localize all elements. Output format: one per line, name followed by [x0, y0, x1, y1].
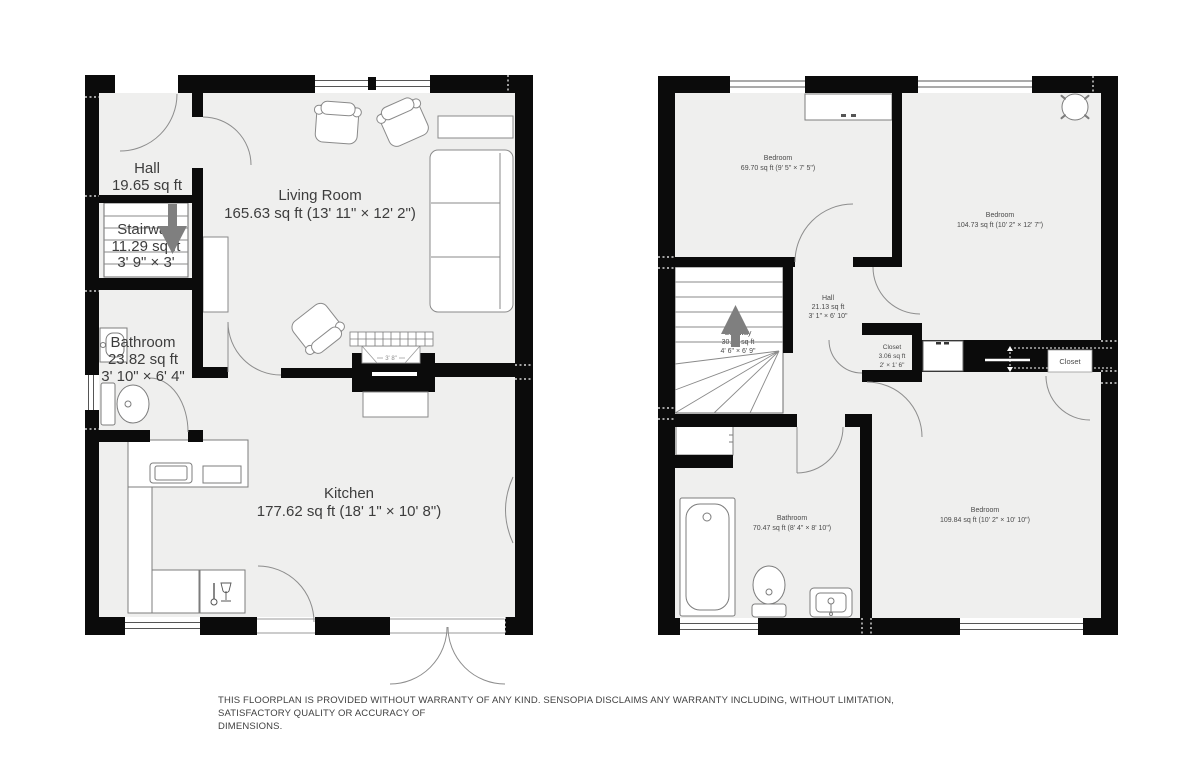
bedroom3-area: 109.84 sq ft (10' 2" × 10' 10")	[940, 517, 1030, 524]
bathroom-label: Bathroom	[110, 334, 175, 351]
hall-area: 19.65 sq ft	[112, 177, 183, 194]
window	[315, 75, 430, 93]
fireplace-width-label: 3' 8"	[385, 356, 397, 362]
window	[125, 617, 200, 635]
counter	[128, 487, 152, 613]
hall-area: 21.13 sq ft	[812, 304, 845, 311]
stairway-dims: 4' 6" × 6' 9"	[720, 348, 756, 355]
living-room-label: Living Room	[278, 187, 361, 204]
kitchen-area: 177.62 sq ft (18' 1" × 10' 8")	[257, 503, 441, 520]
dresser	[805, 94, 892, 120]
cabinet	[152, 570, 199, 613]
upper-floor-plan: Bedroom 69.70 sq ft (9' 5" × 7' 5") Bedr…	[658, 76, 1118, 635]
bedroom1-area: 69.70 sq ft (9' 5" × 7' 5")	[741, 165, 815, 172]
hall-dims: 3' 1" × 6' 10"	[809, 313, 848, 320]
bedroom2-label: Bedroom	[986, 212, 1015, 219]
window	[960, 618, 1083, 635]
closet-label: Closet	[883, 344, 902, 351]
side-table	[438, 116, 513, 138]
built-in-cabinet	[923, 341, 963, 371]
disclaimer-line-1: THIS FLOORPLAN IS PROVIDED WITHOUT WARRA…	[218, 694, 966, 720]
window	[85, 375, 99, 410]
hall-label: Hall	[134, 160, 160, 177]
ceiling-light	[1062, 94, 1089, 120]
fireplace: 3' 8"	[350, 332, 435, 417]
bathroom-area: 23.82 sq ft	[108, 351, 179, 368]
mantel-grid	[350, 332, 433, 346]
floorplan-canvas: 3' 8" Hall 19.65 sq ft Stairway 11.29 sq…	[0, 0, 1200, 780]
hall-label: Hall	[822, 295, 835, 302]
toilet	[752, 566, 786, 617]
window	[680, 618, 758, 635]
stairway-dims: 3' 9" × 3'	[117, 254, 174, 271]
window	[730, 76, 805, 93]
closet-right-label: Closet	[1059, 357, 1081, 366]
ground-floor-plan: 3' 8" Hall 19.65 sq ft Stairway 11.29 sq…	[85, 75, 533, 684]
cooktop	[203, 466, 241, 483]
toilet	[101, 383, 149, 425]
bathroom-label: Bathroom	[777, 515, 808, 522]
linen-shelf	[676, 425, 733, 455]
armchair	[312, 100, 362, 144]
bathroom-area: 70.47 sq ft (8' 4" × 8' 10")	[753, 525, 831, 532]
bedroom1-label: Bedroom	[764, 155, 793, 162]
sink	[810, 588, 852, 617]
disclaimer-line-2: DIMENSIONS.	[218, 720, 966, 733]
bedroom3-label: Bedroom	[971, 507, 1000, 514]
hearth	[363, 392, 428, 417]
cabinet	[203, 237, 228, 312]
french-door-arcs	[390, 627, 505, 684]
sofa	[430, 150, 513, 312]
bathroom-dims: 3' 10" × 6' 4"	[101, 368, 185, 385]
kitchen-label: Kitchen	[324, 485, 374, 502]
closet-area: 3.06 sq ft	[879, 353, 906, 360]
living-room-area: 165.63 sq ft (13' 11" × 12' 2")	[224, 205, 416, 222]
bathtub	[680, 498, 735, 616]
disclaimer: THIS FLOORPLAN IS PROVIDED WITHOUT WARRA…	[218, 694, 966, 733]
bedroom2-area: 104.73 sq ft (10' 2" × 12' 7")	[957, 222, 1043, 229]
closet-dims: 2' × 1' 6"	[880, 362, 906, 369]
dishwasher	[200, 570, 245, 613]
window	[918, 76, 1032, 93]
